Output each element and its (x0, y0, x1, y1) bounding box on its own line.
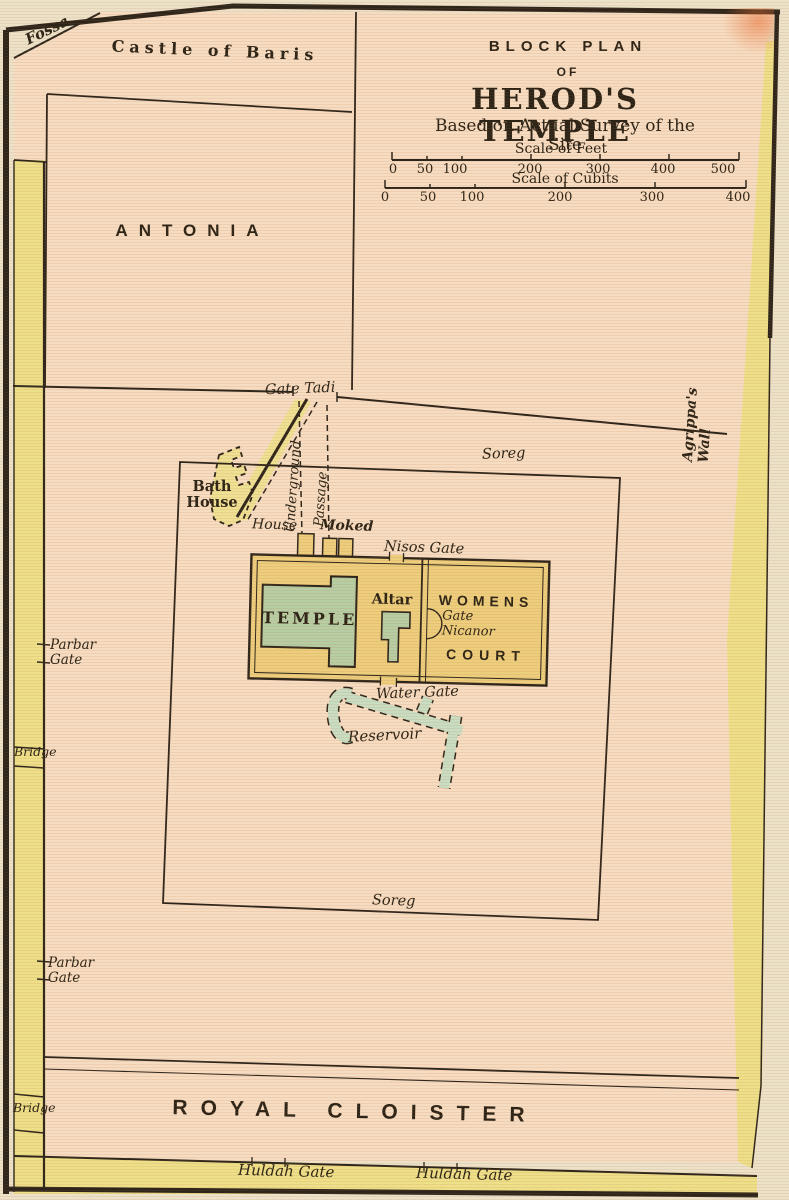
house-label: House (252, 517, 298, 534)
nisos-gate-label: Nisos Gate (384, 539, 465, 558)
scale-feet-tick-5: 400 (643, 163, 683, 178)
scale-cubits-tick-3: 200 (540, 191, 580, 206)
bridge-1-label: Bridge (14, 745, 57, 759)
scale-cubits-title: Scale of Cubits (485, 172, 645, 188)
soreg-bottom-label: Soreg (372, 892, 416, 910)
scale-cubits-tick-4: 300 (632, 191, 672, 206)
scale-cubits-tick-2: 100 (452, 191, 492, 206)
water-gate-label: Water Gate (376, 684, 459, 703)
court-label: COURT (440, 647, 532, 665)
bridge-2-label: Bridge (13, 1101, 56, 1115)
scale-feet-tick-6: 500 (703, 163, 743, 178)
temple-label: TEMPLE (262, 609, 348, 629)
gate-nicanor-label: Gate Nicanor (442, 609, 496, 639)
scale-cubits-tick-1: 50 (408, 191, 448, 206)
reservoir-label: Reservoir (348, 725, 422, 746)
huldah-gate-2-label: Huldah Gate (416, 1165, 513, 1184)
agrippas-wall-label: Agrippa's Wall (681, 384, 718, 463)
map-plate: Fossa Castle of Baris BLOCK PLAN OF HERO… (0, 0, 789, 1200)
parbar-gate-1-label: Parbar Gate (50, 638, 96, 668)
huldah-gate-1-label: Huldah Gate (238, 1162, 335, 1181)
nisos-gate-gap (389, 555, 403, 562)
scale-cubits-tick-5: 400 (718, 191, 758, 206)
parbar-gate-2-label: Parbar Gate (48, 956, 94, 986)
scale-feet-tick-2: 100 (435, 163, 475, 178)
soreg-top-label: Soreg (482, 445, 526, 463)
title-of: OF (530, 66, 606, 79)
altar-label: Altar (370, 591, 414, 608)
west-wall (14, 160, 44, 1192)
moked-label: Moked (320, 518, 374, 536)
scale-cubits-tick-0: 0 (365, 191, 405, 206)
water-gate-gap (380, 678, 396, 685)
title-kicker: BLOCK PLAN (480, 39, 656, 56)
scale-feet-title: Scale of Feet (481, 142, 641, 158)
gate-tadi-label: Gate Tadi (265, 380, 336, 399)
bath-house-label: Bath House (186, 479, 238, 511)
antonia-label: ANTONIA (95, 221, 290, 240)
